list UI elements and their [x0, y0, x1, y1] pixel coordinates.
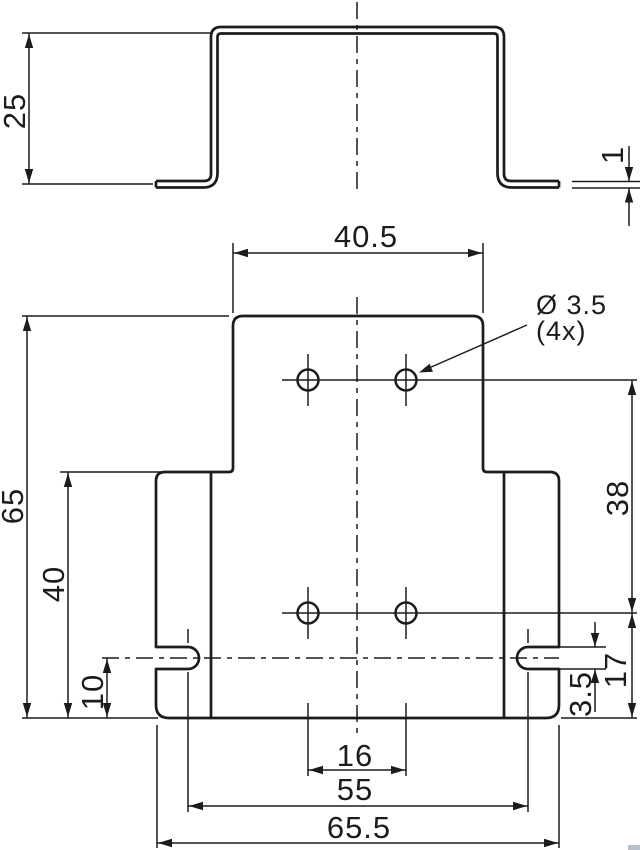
dim-label-40-5: 40.5 — [334, 219, 398, 254]
dim-label-17: 17 — [598, 652, 633, 688]
arrowhead-down — [591, 633, 599, 647]
arrowhead-right — [468, 249, 482, 257]
dim-label-38: 38 — [600, 480, 635, 516]
scrollbar-corner-artifact — [628, 845, 640, 850]
arrowhead-up — [64, 473, 72, 487]
arrowhead-up — [628, 381, 636, 395]
dim-label-3-5: 3.5 — [563, 671, 598, 717]
dimension-height-25: 25 — [0, 33, 212, 184]
arrowhead-right — [544, 839, 558, 847]
hole-callout: Ø 3.5 (4x) — [419, 290, 607, 373]
arrowhead-up — [25, 34, 33, 48]
arrowhead-down — [625, 167, 633, 181]
arrowhead-down — [628, 598, 636, 612]
dim-label-25: 25 — [0, 93, 32, 129]
arrowhead-up — [23, 317, 31, 331]
side-view: 25 1 — [0, 2, 640, 226]
arrowhead-up — [625, 189, 633, 203]
arrowhead-right — [513, 802, 527, 810]
arrowhead-up — [103, 659, 111, 673]
arrowhead-left — [234, 249, 248, 257]
drawing-canvas: 25 1 — [0, 0, 640, 850]
hole-count-label: (4x) — [536, 316, 587, 346]
dimension-slot-to-edge-10: 10 — [75, 658, 111, 718]
dim-label-10: 10 — [75, 674, 110, 710]
dim-label-16: 16 — [337, 738, 373, 773]
dimension-slot-width-3-5: 3.5 — [560, 622, 606, 717]
arrowhead-left — [309, 766, 323, 774]
leader-line — [429, 325, 527, 368]
arrowhead-down — [64, 703, 72, 717]
dimension-thickness-1: 1 — [572, 146, 640, 226]
dimension-top-width-40-5: 40.5 — [233, 219, 483, 313]
arrowhead-left — [158, 839, 172, 847]
dim-label-55: 55 — [337, 772, 373, 807]
arrowhead-down — [23, 703, 31, 717]
plan-view: Ø 3.5 (4x) 40.5 65 40 — [0, 219, 637, 848]
dim-label-1: 1 — [595, 146, 630, 164]
technical-drawing: 25 1 — [0, 0, 640, 850]
arrowhead-right — [391, 766, 405, 774]
arrowhead-down — [25, 169, 33, 183]
arrowhead-up — [628, 614, 636, 628]
arrowhead-down — [628, 703, 636, 717]
dim-label-65: 65 — [0, 488, 30, 524]
dim-label-40: 40 — [36, 566, 71, 602]
arrowhead-left — [189, 802, 203, 810]
leader-arrowhead — [419, 364, 433, 373]
dim-label-65-5: 65.5 — [327, 810, 391, 845]
